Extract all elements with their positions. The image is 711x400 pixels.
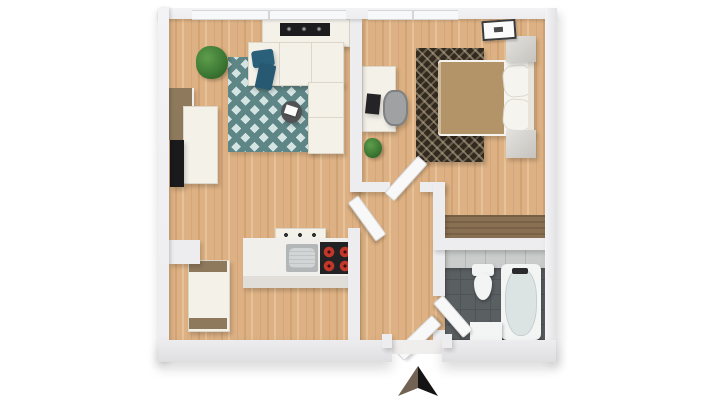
wall-bathroom-top <box>433 238 545 250</box>
exterior-wall-left <box>158 8 169 362</box>
ceiling-frame <box>481 19 516 41</box>
bathtub-faucet <box>512 268 528 274</box>
counter-front-face <box>243 276 356 288</box>
living-room-window <box>192 10 346 20</box>
tv <box>170 140 184 187</box>
sink-basin <box>289 248 315 268</box>
bathtub-basin <box>505 269 537 336</box>
wall-hall-top-left <box>350 182 390 192</box>
nightstand-lower <box>506 130 536 158</box>
media-bench <box>183 106 218 184</box>
kitchen-tall-cabinet <box>188 260 230 332</box>
floor-plan-canvas <box>0 0 711 400</box>
living-room-plant <box>196 46 228 79</box>
wall-kitchen-hall <box>348 228 360 340</box>
exterior-wall-bottom-right <box>442 340 556 362</box>
wall-kitchen-jog <box>169 240 200 264</box>
kitchen-sink <box>286 244 318 272</box>
exterior-wall-bottom-left <box>158 340 392 362</box>
ceiling-frame-glyph <box>494 27 503 33</box>
wall-living-bedroom <box>350 19 362 192</box>
entry-jamb-right <box>442 334 452 348</box>
decor-runner <box>280 23 330 36</box>
exterior-wall-right <box>545 8 557 362</box>
entry-threshold <box>392 340 442 354</box>
bedroom-window <box>368 10 458 20</box>
north-arrow-icon <box>394 364 442 400</box>
desk-chair <box>383 90 408 126</box>
nightstand-upper <box>506 36 536 62</box>
bedroom-plant <box>364 138 382 158</box>
bathroom-vanity <box>470 322 502 340</box>
headboard <box>528 60 534 136</box>
duvet <box>438 62 504 134</box>
sofa-right-section <box>308 82 344 154</box>
entry-jamb-left <box>382 334 392 348</box>
cabinet-bottom-cap <box>189 318 227 329</box>
double-bed <box>438 60 534 136</box>
kitchen-counter <box>243 238 356 288</box>
laptop <box>365 93 381 114</box>
bathtub <box>501 264 541 340</box>
